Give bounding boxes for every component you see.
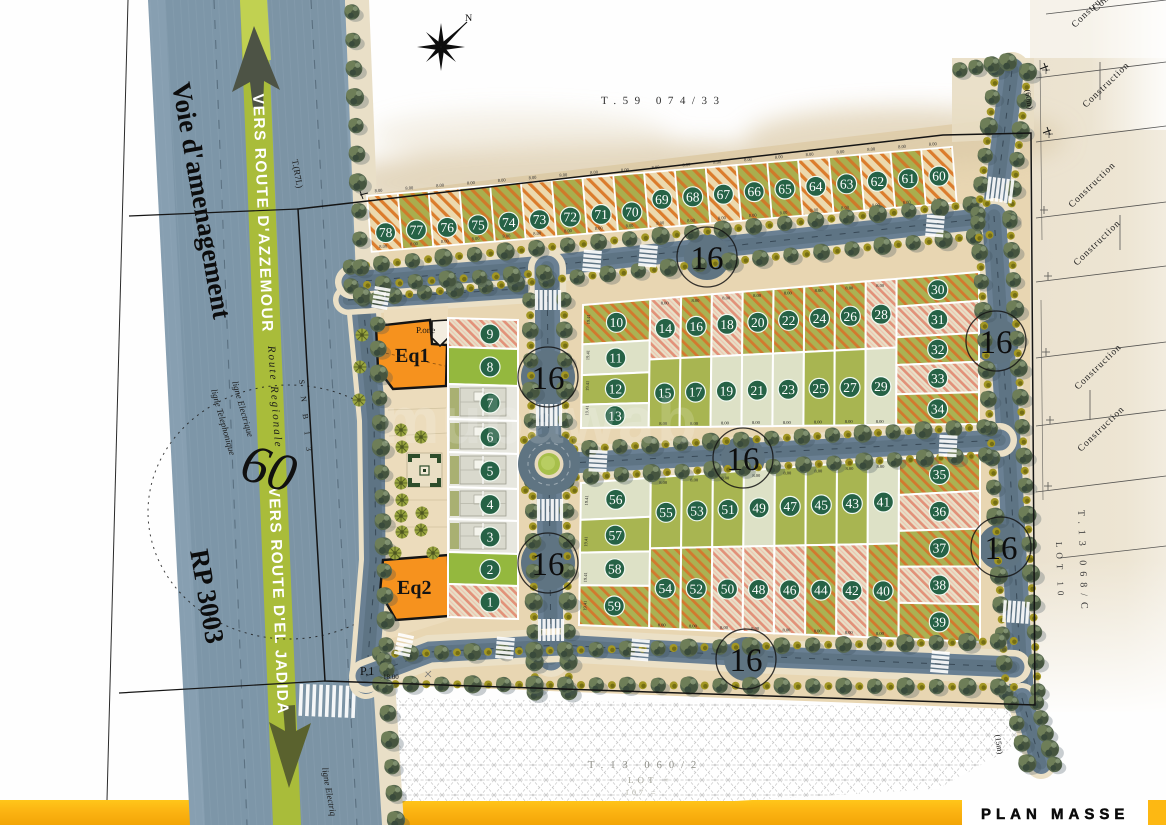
svg-text:mubawab: mubawab [381,383,699,457]
svg-text:N: N [465,13,472,24]
svg-text:47: 47 [783,499,797,514]
svg-text:8.00: 8.00 [752,420,761,425]
svg-text:56: 56 [609,492,623,507]
svg-text:19.41: 19.41 [585,350,591,360]
svg-text:8.00: 8.00 [559,172,568,178]
svg-text:8.00: 8.00 [720,625,729,630]
svg-text:PLAN MASSE: PLAN MASSE [981,806,1129,823]
svg-text:59: 59 [608,599,622,614]
svg-text:68: 68 [686,189,700,204]
svg-text:63: 63 [840,176,854,191]
svg-text:8.00: 8.00 [779,210,788,216]
svg-text:8.00: 8.00 [661,301,670,306]
svg-text:70: 70 [625,205,639,220]
svg-text:2: 2 [487,562,494,577]
svg-text:48: 48 [752,582,766,597]
svg-text:76: 76 [440,220,454,235]
svg-text:8.00: 8.00 [876,283,885,288]
svg-text:LOT =: LOT = [628,775,673,785]
svg-text:18: 18 [720,317,734,332]
svg-text:107 =: 107 = [625,788,659,797]
svg-text:19.41: 19.41 [583,536,589,546]
svg-text:42: 42 [845,583,859,598]
svg-text:52: 52 [690,581,704,596]
svg-text:69: 69 [655,192,669,207]
svg-text:16: 16 [985,531,1018,567]
svg-text:9: 9 [487,327,494,342]
svg-text:8.00: 8.00 [814,420,823,425]
svg-text:19: 19 [720,384,734,399]
svg-text:8.00: 8.00 [658,622,667,627]
svg-text:19.41: 19.41 [582,601,588,611]
svg-text:41: 41 [877,495,891,510]
svg-text:8.00: 8.00 [845,630,854,635]
svg-text:8.00: 8.00 [815,288,824,293]
svg-text:23: 23 [781,382,795,397]
svg-text:51: 51 [721,502,735,517]
svg-text:5: 5 [487,464,494,479]
svg-text:8.00: 8.00 [805,151,814,157]
svg-text:22: 22 [782,313,796,328]
svg-text:8.00: 8.00 [625,223,634,229]
svg-text:P.1: P.1 [360,664,374,678]
svg-text:21: 21 [751,383,765,398]
svg-text:24: 24 [813,311,827,326]
svg-text:39: 39 [933,614,947,629]
svg-text:8.00: 8.00 [410,241,419,247]
svg-text:72: 72 [564,210,578,225]
svg-text:31: 31 [931,312,945,327]
svg-text:60: 60 [932,169,946,184]
svg-text:8.00: 8.00 [687,218,696,224]
svg-text:58: 58 [608,561,622,576]
svg-text:36: 36 [933,504,947,519]
svg-text:45: 45 [815,498,829,513]
svg-text:8.00: 8.00 [783,420,792,425]
svg-text:8.00: 8.00 [836,149,845,155]
svg-text:8.00: 8.00 [721,421,730,426]
svg-text:8.00: 8.00 [689,624,698,629]
svg-text:67: 67 [717,187,731,202]
svg-text:8.00: 8.00 [753,293,762,298]
svg-text:8.00: 8.00 [564,228,573,234]
svg-text:T.59 074/33: T.59 074/33 [601,95,725,107]
svg-text:35: 35 [933,467,947,482]
svg-text:10: 10 [610,315,624,330]
svg-text:54: 54 [658,581,672,596]
svg-text:49: 49 [752,501,766,516]
svg-text:66: 66 [747,184,761,199]
svg-text:26: 26 [844,309,858,324]
svg-text:8.00: 8.00 [929,141,938,147]
svg-text:8.00: 8.00 [784,291,793,296]
svg-text:62: 62 [871,174,885,189]
svg-text:8.00: 8.00 [595,225,604,231]
svg-text:8.00: 8.00 [656,220,665,226]
svg-text:50: 50 [721,582,735,597]
svg-text:65: 65 [778,182,792,197]
svg-text:8.00: 8.00 [467,180,476,186]
svg-text:8.00: 8.00 [405,185,414,191]
svg-text:1: 1 [487,595,494,610]
svg-text:55: 55 [659,505,673,520]
svg-text:32: 32 [931,342,945,357]
svg-text:34: 34 [931,401,945,416]
svg-text:16: 16 [980,325,1013,361]
svg-text:19.41: 19.41 [583,572,589,582]
svg-text:57: 57 [608,528,622,543]
svg-text:8.00: 8.00 [374,188,383,194]
svg-text:33: 33 [931,371,945,386]
svg-text:8.00: 8.00 [898,144,907,150]
svg-text:T.13 060/2: T.13 060/2 [588,760,703,771]
svg-text:19.41: 19.41 [584,495,590,505]
svg-text:61: 61 [901,171,915,186]
svg-text:8.00: 8.00 [533,230,542,236]
svg-text:8.00: 8.00 [528,175,537,181]
svg-text:78: 78 [379,225,393,240]
svg-text:8.00: 8.00 [876,419,885,424]
svg-text:16: 16 [689,319,703,334]
svg-text:25: 25 [812,381,826,396]
svg-text:8.00: 8.00 [471,236,480,242]
svg-text:71: 71 [594,207,608,222]
svg-text:3: 3 [487,530,494,545]
svg-text:8.00: 8.00 [441,238,450,244]
svg-text:8.00: 8.00 [814,629,823,634]
svg-text:8.00: 8.00 [867,146,876,152]
svg-text:43: 43 [846,496,860,511]
svg-text:4: 4 [487,497,494,512]
svg-text:8.00: 8.00 [749,212,758,218]
svg-text:Eq2: Eq2 [397,577,431,599]
svg-text:73: 73 [533,212,547,227]
svg-text:75: 75 [471,217,485,232]
svg-text:16: 16 [727,442,760,478]
svg-text:LOT 10: LOT 10 [1054,542,1066,601]
svg-text:29: 29 [874,379,888,394]
svg-text:8.00: 8.00 [718,215,727,221]
svg-text:30: 30 [931,282,945,297]
svg-text:37: 37 [933,541,947,556]
svg-text:11: 11 [609,351,622,366]
svg-text:40: 40 [876,583,890,598]
svg-text:28: 28 [874,307,888,322]
svg-text:8.00: 8.00 [845,286,854,291]
svg-text:P.one: P.one [416,325,435,335]
svg-text:8.00: 8.00 [876,631,885,636]
svg-text:8.00: 8.00 [502,233,511,239]
svg-text:74: 74 [502,215,516,230]
svg-text:53: 53 [690,503,704,518]
svg-text:16: 16 [532,547,565,583]
svg-text:44: 44 [814,583,828,598]
svg-text:38: 38 [933,578,947,593]
svg-text:8.00: 8.00 [692,298,701,303]
svg-text:16: 16 [691,241,724,277]
svg-text:18.00: 18.00 [383,673,399,681]
svg-text:8.00: 8.00 [783,627,792,632]
svg-text:8.00: 8.00 [436,182,445,188]
svg-text:20: 20 [751,315,765,330]
svg-text:77: 77 [410,223,424,238]
svg-text:8.00: 8.00 [845,419,854,424]
svg-text:64: 64 [809,179,823,194]
svg-text:19.41: 19.41 [586,314,592,324]
svg-text:8.00: 8.00 [498,177,507,183]
svg-text:8.00: 8.00 [846,466,855,471]
svg-text:8.00: 8.00 [379,243,388,249]
svg-text:27: 27 [843,380,857,395]
svg-text:8.00: 8.00 [722,296,731,301]
svg-text:8: 8 [487,360,494,375]
svg-text:16: 16 [730,643,763,679]
svg-text:14: 14 [659,321,673,336]
svg-text:46: 46 [783,582,797,597]
